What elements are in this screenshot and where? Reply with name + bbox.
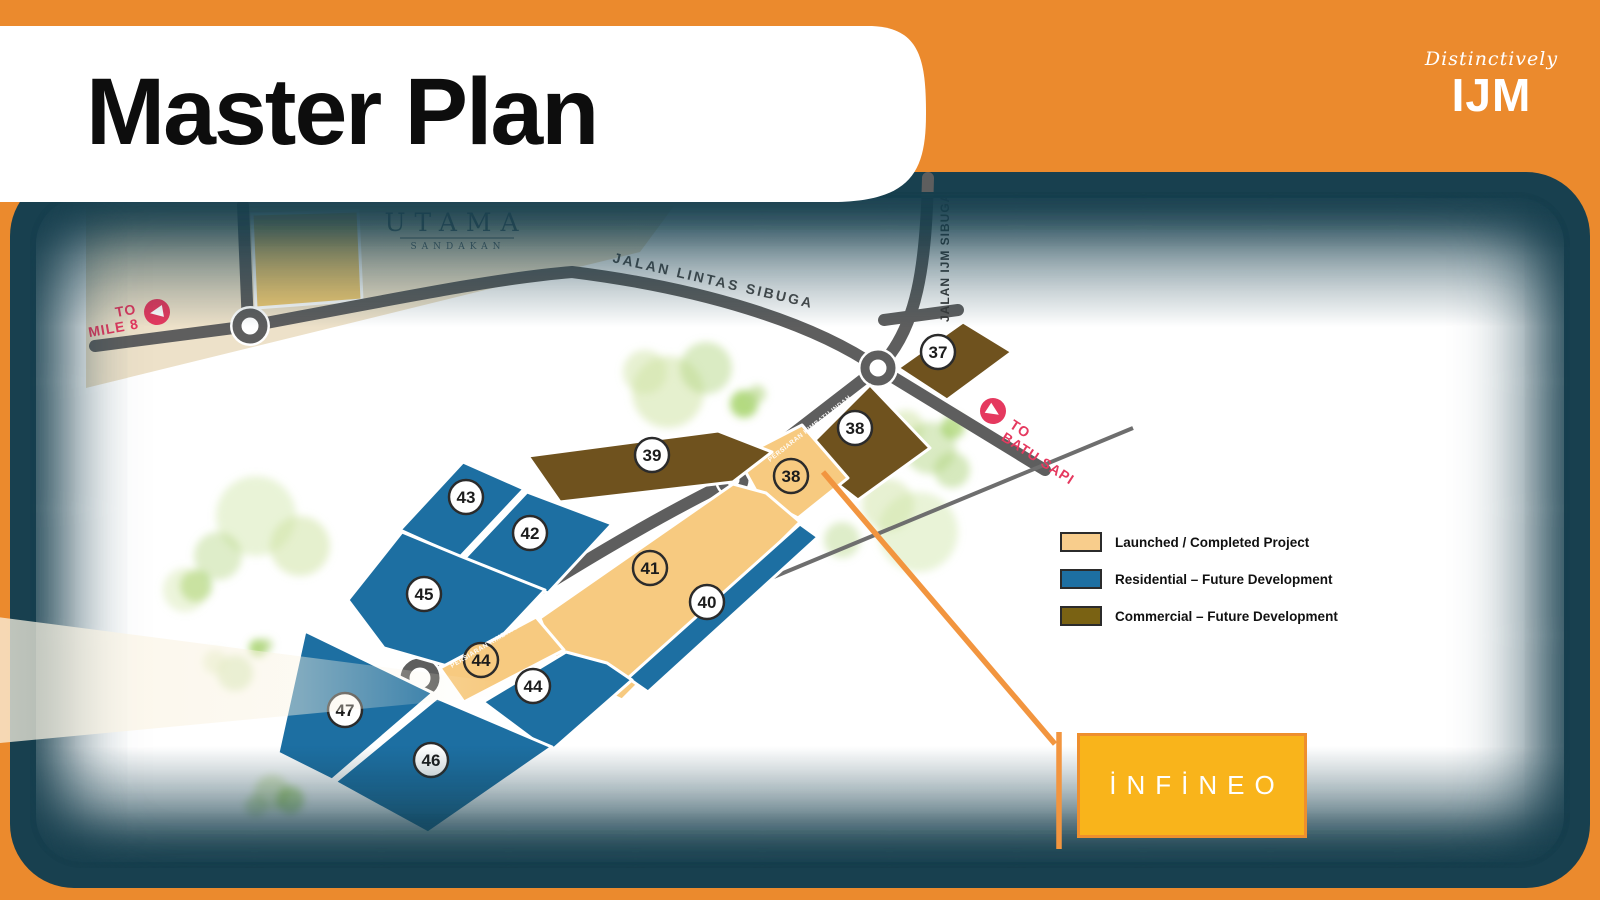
ijm-name: IJM	[1452, 72, 1532, 118]
lot-number: 39	[643, 446, 662, 465]
lot-number: 40	[698, 593, 717, 612]
lot-number: 43	[457, 488, 476, 507]
utama-logo: UTAMA	[384, 208, 527, 237]
legend-label: Commercial – Future Development	[1115, 609, 1338, 624]
ijm-logo: Distinctively IJM	[1415, 0, 1568, 165]
tree-icon	[276, 786, 304, 814]
lot-number: 41	[641, 559, 660, 578]
lot-number: 45	[415, 585, 434, 604]
map-frame: UTAMASANDAKAN37383839434245414044444746J…	[10, 172, 1590, 888]
infineo-logo: İNFİNEO	[1099, 770, 1284, 801]
tree-icon	[680, 342, 732, 394]
legend-swatch-residential	[1060, 569, 1102, 589]
tree-icon	[163, 568, 207, 612]
roundabout-icon	[237, 313, 263, 339]
utama-subtitle: SANDAKAN	[411, 242, 506, 252]
legend-swatch-commercial	[1060, 606, 1102, 626]
legend-label: Launched / Completed Project	[1115, 535, 1309, 550]
tree-icon	[270, 516, 330, 576]
roundabout-icon	[865, 355, 891, 381]
lot-number: 44	[524, 677, 543, 696]
lot-number: 42	[521, 524, 540, 543]
ijm-tagline: Distinctively	[1425, 48, 1558, 70]
tree-icon	[245, 795, 267, 817]
legend-row-commercial: Commercial – Future Development	[1060, 606, 1338, 626]
legend-row-launched: Launched / Completed Project	[1060, 532, 1338, 552]
tree-icon	[203, 650, 227, 674]
legend-label: Residential – Future Development	[1115, 572, 1333, 587]
page-title: Master Plan	[86, 58, 597, 167]
lot-number: 38	[782, 467, 801, 486]
tree-icon	[934, 452, 970, 488]
legend-swatch-launched	[1060, 532, 1102, 552]
infineo-box: İNFİNEO	[1077, 733, 1307, 838]
lot-number: 38	[846, 419, 865, 438]
slide-master-plan: UTAMASANDAKAN37383839434245414044444746J…	[0, 0, 1600, 900]
tree-icon	[748, 385, 766, 403]
lot-number: 47	[336, 701, 355, 720]
lot-number: 37	[929, 343, 948, 362]
lot-number: 46	[422, 751, 441, 770]
map-legend: Launched / Completed Project Residential…	[1060, 532, 1338, 643]
legend-row-residential: Residential – Future Development	[1060, 569, 1338, 589]
master-plan-map: UTAMASANDAKAN37383839434245414044444746J…	[10, 172, 1590, 888]
road-label: JALAN IJM SIBUGA	[938, 193, 952, 322]
tree-icon	[259, 638, 273, 652]
old-town-lot	[252, 211, 362, 308]
